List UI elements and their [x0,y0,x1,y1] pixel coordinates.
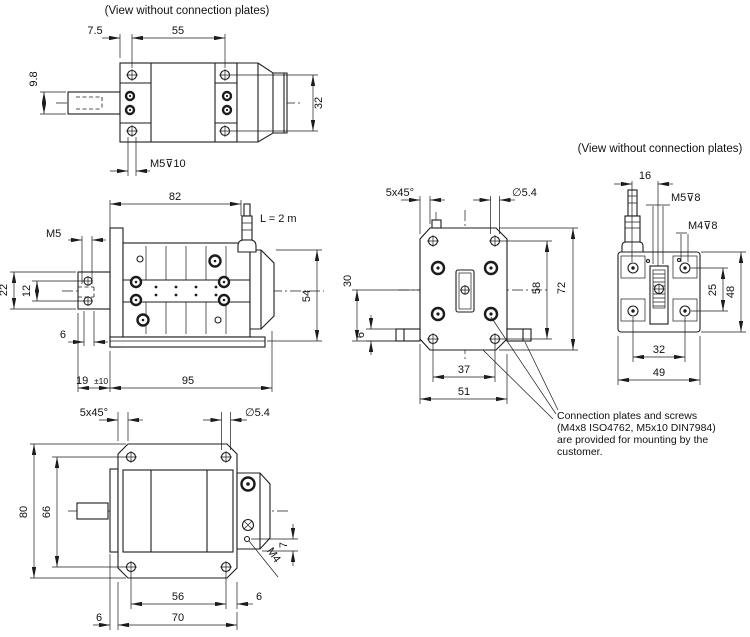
view-top: 82 L = 2 m M5 22 12 6 19 ± [0,191,324,392]
dim-54: 54 [267,250,322,341]
dim-80-label: 80 [18,506,30,518]
note-line-4: customer. [557,446,603,458]
dim-7-label: 7 [278,542,290,548]
dim-51-label: 51 [458,386,470,398]
dim-16-label: 16 [639,170,651,182]
dim-12-label: 12 [21,285,33,297]
dim-30-label: 30 [342,275,354,287]
dim-32-label: 32 [653,344,665,356]
view-front: 5x45° ∅5.4 80 66 56 6 [18,407,298,630]
output-shaft [77,503,108,519]
pin-hole [137,256,143,262]
dim-5x45: 5x45° [80,407,143,441]
dim-6-right: 6 [237,582,262,609]
dim-6-label: 6 [60,329,66,341]
dim-95-label: 95 [182,375,194,387]
pin-hole [215,317,221,323]
chamfer-label: 5x45° [80,407,108,419]
view-rear: (View without connection plates) [578,143,746,385]
dim-6-lug: 6 [355,315,396,355]
dim-72-label: 72 [556,282,568,294]
dim-6-left: 6 [93,554,110,630]
view-front-geometry [68,444,290,578]
dim-25-label: 25 [707,284,719,296]
dim-58-label: 58 [531,282,543,294]
dim-9-8-label: 9.8 [28,71,40,86]
base-plate [110,337,265,347]
dim-70-label: 70 [172,612,184,624]
note-line-2: (M4x8 ISO4762, M5x10 DIN7984) [557,422,716,434]
cable-gland [238,240,256,252]
dim-22-label: 22 [0,284,10,296]
dim-54-label: 54 [301,290,313,302]
thread-callout-m5x10: M5⊽10 [150,158,186,170]
view-plate-front: 5x45° ∅5.4 58 72 30 6 [342,187,578,419]
view-side-title: (View without connection plates) [105,5,270,17]
cable-length-label: L = 2 m [260,213,297,225]
sensor-tab [432,220,441,228]
dim-12: 12 [21,281,84,301]
dim-55-label: 55 [172,25,184,37]
dim-6-shaft: 6 [60,311,108,346]
connector-housing [250,250,274,329]
gripper-body [123,470,233,552]
dim-9-8: 9.8 [28,71,66,114]
technical-drawing-page: (View without connection plates) [0,0,750,637]
connection-plates-note: Connection plates and screws (M4x8 ISO47… [557,410,716,458]
dim-7-5: 7.5 [87,25,132,68]
dim-19-label: 19 [76,375,88,387]
cable-gland-stem [242,216,252,240]
thread-callout-m5x8: M5⊽8 [671,192,700,204]
dim-19-tolerance-label: ±10 [94,376,108,386]
hole-diameter-label: ∅5.4 [512,187,537,199]
dim-32-label: 32 [313,97,325,109]
view-rear-title: (View without connection plates) [578,143,743,155]
dim-48-label: 48 [725,286,737,298]
hole-diameter-label: ∅5.4 [245,407,270,419]
dim-6-label: 6 [355,332,367,338]
dim-66-label: 66 [41,506,53,518]
view-top-geometry [62,204,324,347]
dim-19: 19 ±10 [76,313,110,392]
dim-82: 82 [110,191,241,228]
thread-callout-m5: M5 [46,228,61,240]
view-side-top: (View without connection plates) [28,5,325,176]
dim-55: 55 [132,25,225,68]
mounting-flange [110,228,123,347]
dim-6-left-label: 6 [96,612,102,624]
dim-70: 70 [118,582,237,630]
dim-49-label: 49 [653,367,665,379]
dim-22: 22 [0,272,76,309]
dim-m5-depth10: M5⊽10 [110,137,186,176]
note-line-3: are provided for mounting by the [557,434,708,446]
note-line-1: Connection plates and screws [557,410,697,422]
dim-7-5-label: 7.5 [87,25,102,37]
side-lug-left [396,329,420,341]
dim-37-label: 37 [458,364,470,376]
dim-dia-5-4: ∅5.4 [473,187,537,234]
dim-6-right-label: 6 [256,591,262,603]
cable [244,204,250,216]
cable-gland [622,242,643,252]
chamfer-label: 5x45° [386,187,414,199]
phillips-screw-icon [243,520,254,531]
dim-56-label: 56 [172,591,184,603]
m4-hole [245,537,250,542]
drawing-canvas: (View without connection plates) [0,0,750,637]
dim-82-label: 82 [169,191,181,203]
thread-callout-m4x8: M4⊽8 [688,220,717,232]
cable-gland-stem [625,216,640,242]
